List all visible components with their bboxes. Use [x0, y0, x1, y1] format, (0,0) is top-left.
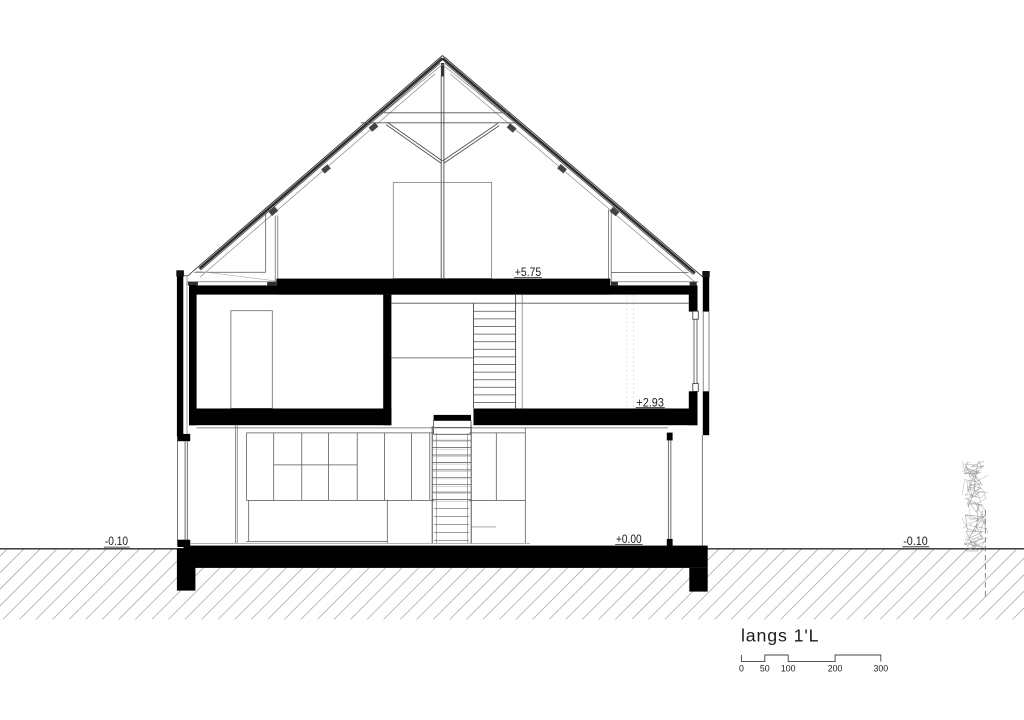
- svg-text:0: 0: [739, 663, 744, 673]
- svg-text:+0.00: +0.00: [616, 532, 642, 546]
- svg-text:50: 50: [760, 663, 770, 673]
- svg-text:+2.93: +2.93: [636, 395, 664, 409]
- svg-text:-0.10: -0.10: [105, 534, 129, 548]
- svg-text:300: 300: [873, 663, 888, 673]
- svg-text:200: 200: [828, 663, 843, 673]
- svg-text:langs 1'L: langs 1'L: [741, 625, 819, 645]
- svg-text:100: 100: [781, 663, 796, 673]
- svg-text:+5.75: +5.75: [515, 265, 542, 279]
- svg-text:-0.10: -0.10: [903, 534, 928, 548]
